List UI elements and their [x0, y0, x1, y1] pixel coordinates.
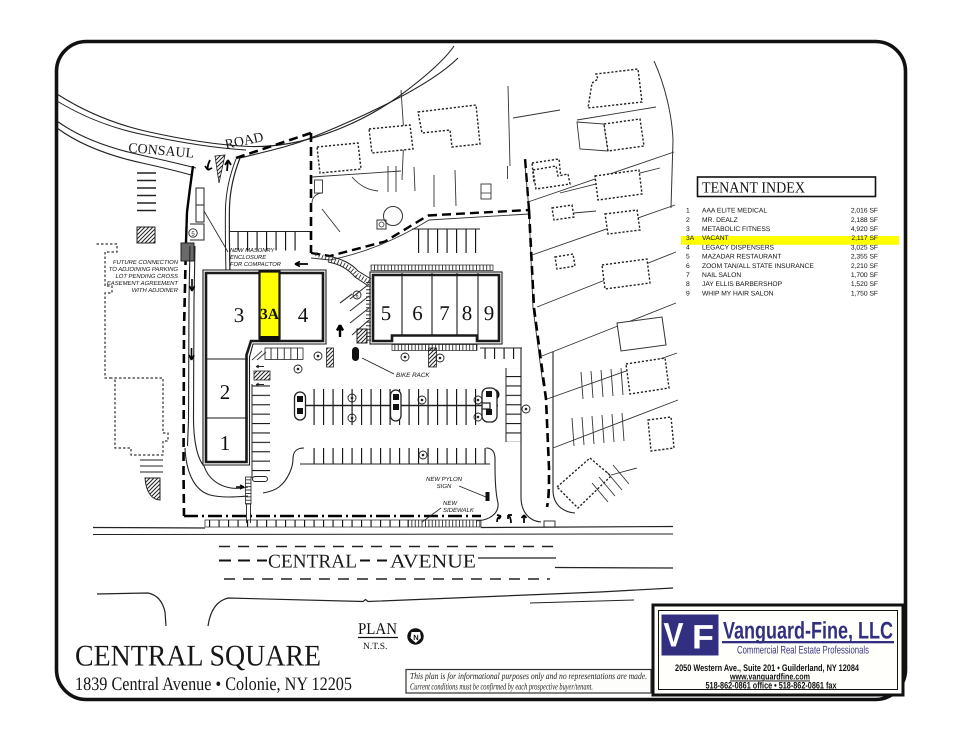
svg-text:CENTRAL SQUARE: CENTRAL SQUARE [75, 640, 321, 673]
svg-text:3: 3 [234, 303, 245, 327]
svg-text:JAY ELLIS BARBERSHOP: JAY ELLIS BARBERSHOP [702, 281, 783, 288]
svg-text:N.T.S.: N.T.S. [363, 642, 387, 652]
svg-text:ZOOM TAN/ALL STATE INSURANCE: ZOOM TAN/ALL STATE INSURANCE [702, 263, 814, 270]
svg-text:9: 9 [686, 290, 690, 297]
svg-text:WHIP MY HAIR SALON: WHIP MY HAIR SALON [702, 290, 774, 297]
svg-text:MR. DEALZ: MR. DEALZ [702, 217, 738, 224]
svg-text:2,016 SF: 2,016 SF [851, 208, 878, 215]
svg-text:8: 8 [686, 281, 690, 288]
svg-text:2: 2 [686, 217, 690, 224]
svg-text:6: 6 [355, 294, 358, 300]
svg-text:1839 Central Avenue • Colonie,: 1839 Central Avenue • Colonie, NY 12205 [75, 674, 352, 695]
svg-text:3A: 3A [260, 306, 280, 323]
svg-text:BIKE RACK: BIKE RACK [396, 372, 430, 379]
svg-text:TO ADJOINING PARKING: TO ADJOINING PARKING [109, 266, 179, 273]
svg-text:This plan is for informational: This plan is for informational purposes … [410, 671, 647, 681]
svg-text:4: 4 [686, 244, 690, 251]
svg-text:1,520 SF: 1,520 SF [851, 281, 878, 288]
svg-text:NEW PYLON: NEW PYLON [426, 476, 463, 483]
svg-text:Current conditions must be con: Current conditions must be confirmed by … [410, 682, 593, 692]
svg-text:4: 4 [298, 303, 309, 327]
svg-text:METABOLIC FITNESS: METABOLIC FITNESS [702, 226, 771, 233]
svg-text:CENTRAL: CENTRAL [268, 552, 357, 573]
svg-text:8: 8 [462, 301, 473, 325]
svg-text:4,920 SF: 4,920 SF [851, 226, 878, 233]
svg-text:ENCLOSURE: ENCLOSURE [230, 254, 266, 261]
svg-text:7: 7 [686, 272, 690, 279]
svg-text:2,355 SF: 2,355 SF [851, 254, 878, 261]
svg-text:FOR COMPACTOR: FOR COMPACTOR [230, 261, 282, 268]
svg-text:3: 3 [686, 226, 690, 233]
svg-text:AVENUE: AVENUE [390, 552, 476, 573]
svg-text:9: 9 [484, 301, 495, 325]
svg-text:EASEMENT AGREEMENT: EASEMENT AGREEMENT [107, 280, 179, 287]
svg-text:1: 1 [686, 208, 690, 215]
svg-text:PLAN: PLAN [358, 619, 397, 638]
svg-text:2: 2 [220, 380, 231, 404]
svg-text:NAIL SALON: NAIL SALON [702, 272, 741, 279]
svg-text:LEGACY DISPENSERS: LEGACY DISPENSERS [702, 244, 775, 251]
svg-text:MAZADAR RESTAURANT: MAZADAR RESTAURANT [702, 254, 781, 261]
svg-text:6: 6 [412, 301, 423, 325]
svg-text:3A: 3A [686, 235, 695, 242]
svg-text:3,025 SF: 3,025 SF [851, 244, 878, 251]
svg-text:TENANT INDEX: TENANT INDEX [702, 180, 805, 197]
svg-text:AAA ELITE MEDICAL: AAA ELITE MEDICAL [702, 208, 767, 215]
svg-text:1: 1 [220, 431, 231, 455]
svg-text:Vanguard-Fine, LLC: Vanguard-Fine, LLC [723, 618, 893, 645]
svg-text:1,750 SF: 1,750 SF [851, 290, 878, 297]
svg-text:FUTURE CONNECTION: FUTURE CONNECTION [113, 259, 179, 266]
svg-text:F: F [692, 619, 714, 657]
svg-text:WITH ADJOINER: WITH ADJOINER [132, 287, 179, 294]
svg-text:SIGN: SIGN [437, 483, 452, 490]
svg-text:5: 5 [381, 301, 392, 325]
svg-text:SIDEWALK: SIDEWALK [443, 507, 475, 514]
svg-text:1,700 SF: 1,700 SF [851, 272, 878, 279]
svg-text:2,188 SF: 2,188 SF [851, 217, 878, 224]
svg-text:Commercial Real Estate Profess: Commercial Real Estate Professionals [737, 645, 869, 657]
svg-text:2,210 SF: 2,210 SF [851, 263, 878, 270]
svg-text:NEW: NEW [443, 500, 458, 507]
svg-text:518-862-0861 office • 518-862-: 518-862-0861 office • 518-862-0861 fax [706, 680, 838, 691]
svg-text:6: 6 [686, 263, 690, 270]
svg-text:7: 7 [439, 301, 450, 325]
svg-text:2,117 SF: 2,117 SF [851, 235, 878, 242]
svg-text:VACANT: VACANT [702, 235, 729, 242]
svg-text:V: V [664, 617, 684, 655]
svg-text:LOT PENDING CROSS: LOT PENDING CROSS [115, 273, 178, 280]
svg-text:5: 5 [686, 254, 690, 261]
svg-text:N: N [413, 633, 418, 642]
